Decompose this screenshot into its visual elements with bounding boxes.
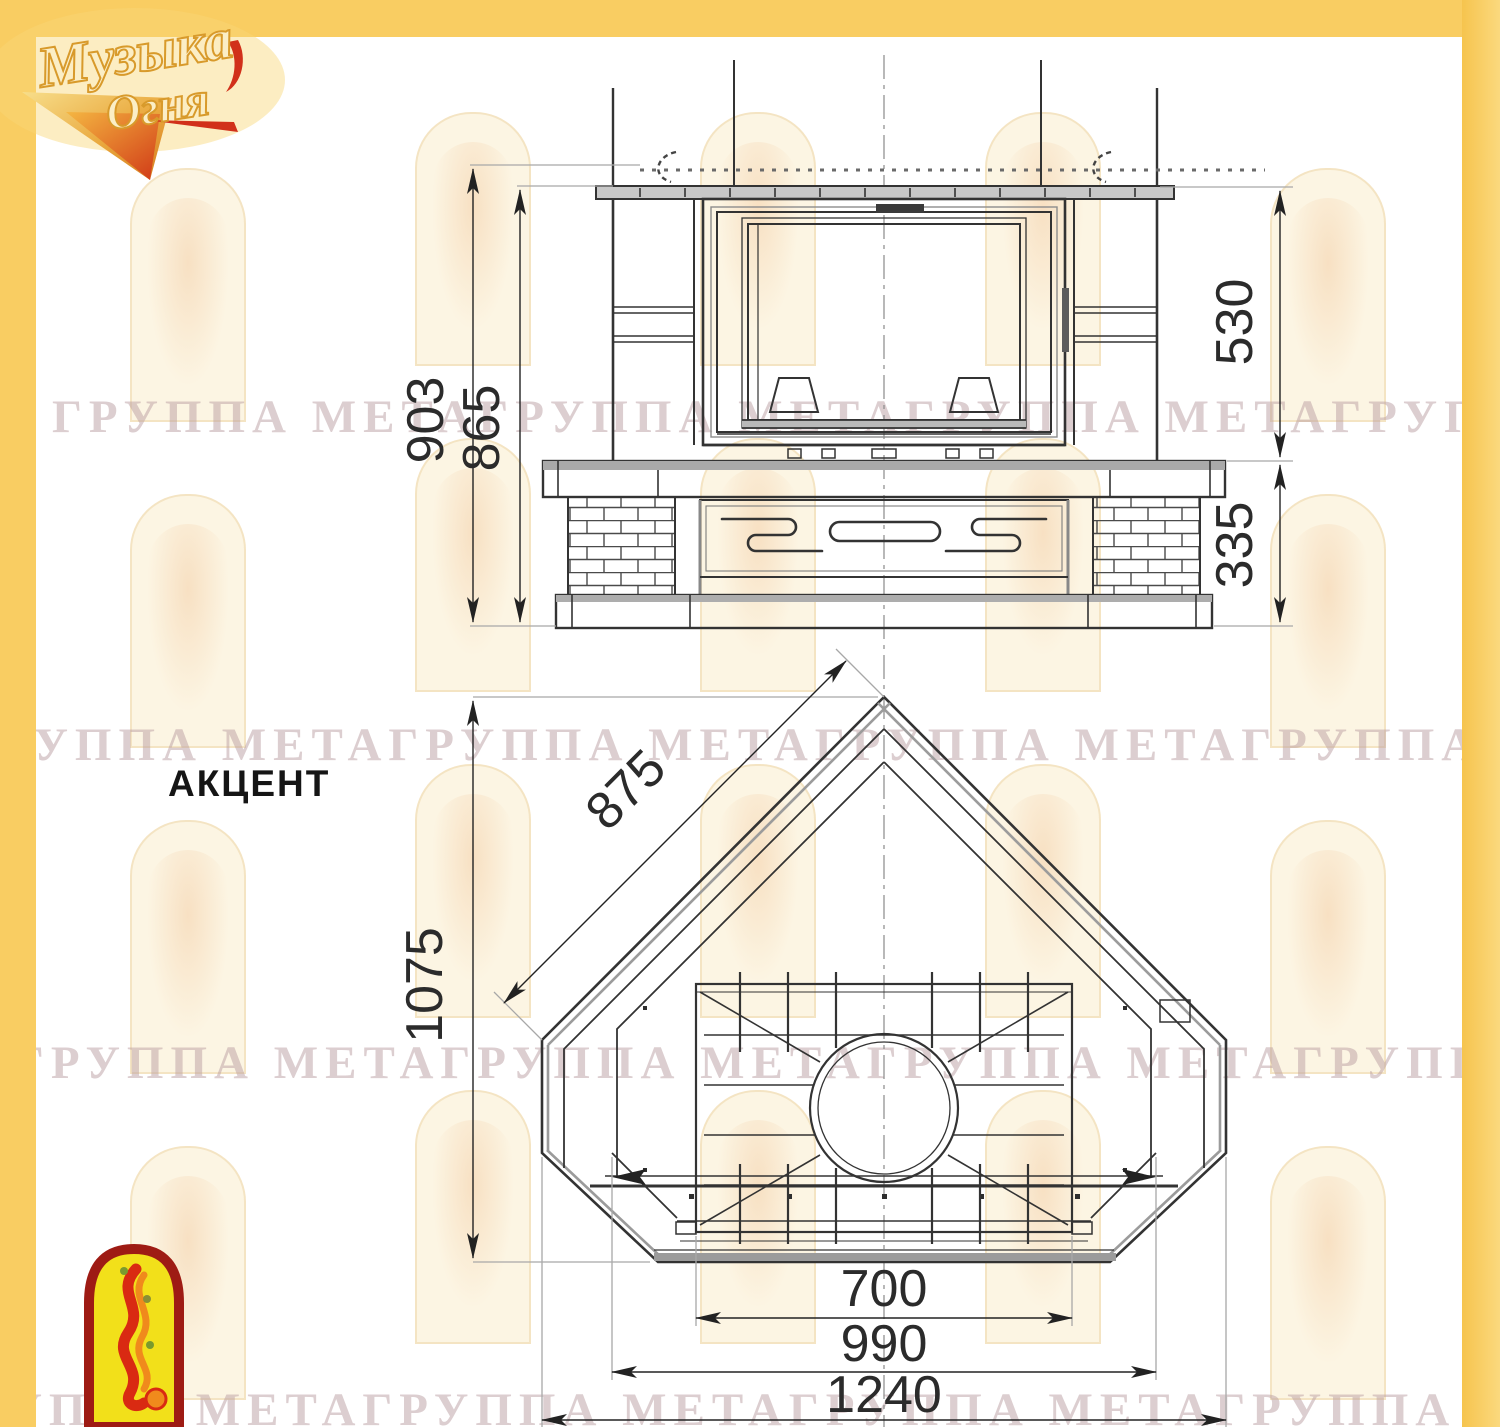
dim-overall-width: 1240 <box>826 1366 942 1424</box>
dim-firebox-width: 700 <box>841 1260 928 1318</box>
dim-body-height: 865 <box>453 385 511 472</box>
dim-inner-width: 990 <box>841 1315 928 1373</box>
frame-strip-right <box>1462 0 1500 1427</box>
firebird-dot <box>143 1295 151 1303</box>
firebird-dot <box>146 1341 154 1349</box>
dim-side-depth: 875 <box>575 739 677 841</box>
top-view-dimensions: 1075 875 700 990 1240 <box>396 649 1226 1427</box>
front-view-drawing <box>543 60 1265 628</box>
dim-base-height: 335 <box>1206 502 1264 589</box>
firebird-logo <box>84 1241 184 1427</box>
firebird-dot <box>120 1267 128 1275</box>
dim-upper-height: 530 <box>1206 279 1264 366</box>
technical-drawing: 903 865 530 335 <box>0 0 1500 1427</box>
frame-strip-left <box>0 0 36 1427</box>
dim-total-depth: 1075 <box>396 927 454 1043</box>
insert-brand-plate <box>876 204 924 213</box>
music-of-fire-logo: Музыка Огня <box>0 0 290 190</box>
dim-overall-height: 903 <box>397 377 455 464</box>
door-handle <box>1062 288 1069 352</box>
model-name-label: АКЦЕНТ <box>168 763 330 805</box>
fireplace-spec-sheet: ГРУППА МЕТАГРУППА МЕТАГРУППА МЕТАГРУППА … <box>0 0 1500 1427</box>
firebird-sun <box>146 1389 166 1409</box>
